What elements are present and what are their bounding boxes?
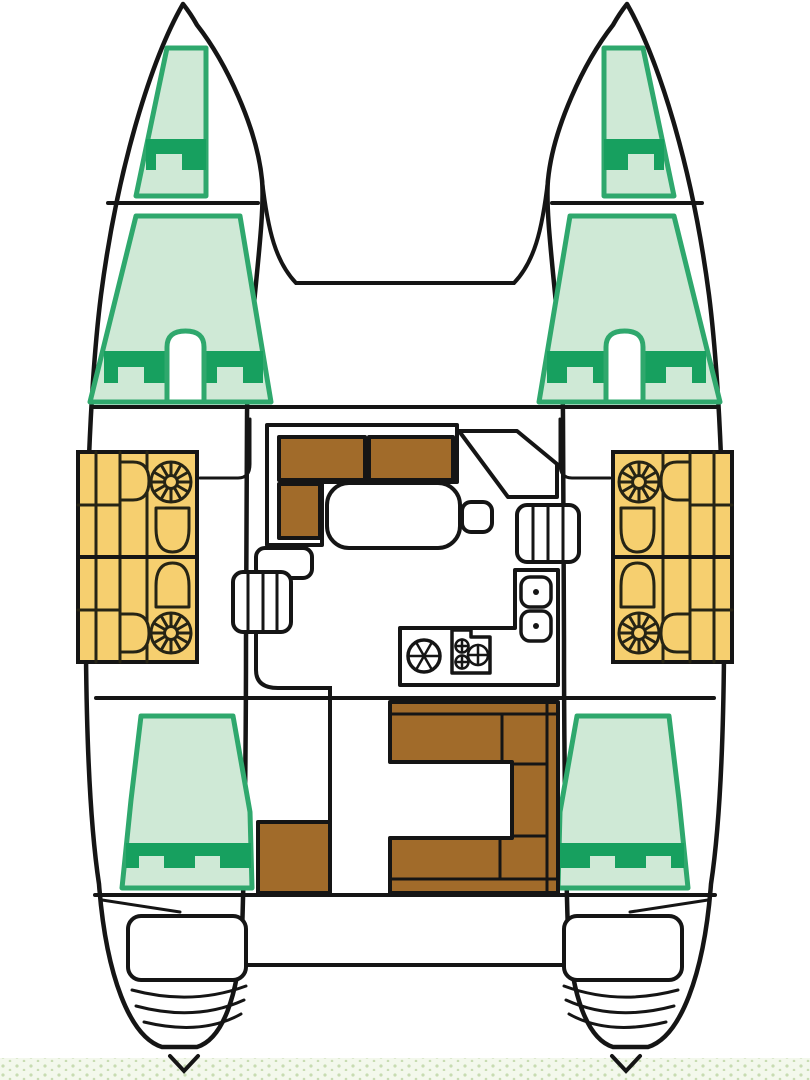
- nav-console: [459, 431, 557, 497]
- salon-table: [327, 483, 460, 548]
- floor-plan-page: [0, 0, 810, 1080]
- berth-pillow-notch: [139, 856, 164, 870]
- berth-pillow-notch: [118, 367, 144, 384]
- settee-cushion: [279, 484, 320, 538]
- cockpit-storage-box: [258, 822, 330, 893]
- galley: [400, 570, 558, 685]
- port-hull: [78, 4, 271, 1071]
- berth-pillow-notch: [217, 367, 243, 384]
- settee-cushion: [369, 437, 453, 480]
- shower-rose: [151, 613, 191, 653]
- cockpit-u-bench: [390, 702, 558, 893]
- washbasin: [120, 614, 149, 652]
- port-steps: [233, 572, 291, 632]
- settee-cushion: [279, 437, 365, 480]
- stove-burner: [456, 640, 469, 653]
- salon: [256, 425, 557, 578]
- stove-burner: [468, 645, 488, 665]
- foredeck-edge: [262, 180, 548, 283]
- sink-drain: [533, 589, 539, 595]
- shower-rose: [151, 462, 191, 502]
- aft-double-berth: [122, 716, 252, 888]
- stool-seat: [462, 502, 492, 532]
- starboard-steps: [517, 505, 579, 562]
- toilet: [156, 563, 189, 607]
- bathroom-block: [78, 452, 197, 662]
- toilet: [156, 508, 189, 552]
- round-basin: [408, 640, 440, 672]
- cockpit-furniture: [258, 702, 558, 893]
- stove: [452, 630, 490, 673]
- swim-platform: [128, 916, 246, 980]
- berth-pillow-notch: [156, 154, 182, 170]
- floor-plan-canvas: [0, 0, 810, 1080]
- stove-burner: [456, 656, 469, 669]
- washbasin: [120, 462, 149, 500]
- water-edge: [0, 1058, 810, 1080]
- sink-drain: [533, 623, 539, 629]
- berth-walkway-arch: [167, 331, 204, 402]
- berth-pillow-notch: [195, 856, 220, 870]
